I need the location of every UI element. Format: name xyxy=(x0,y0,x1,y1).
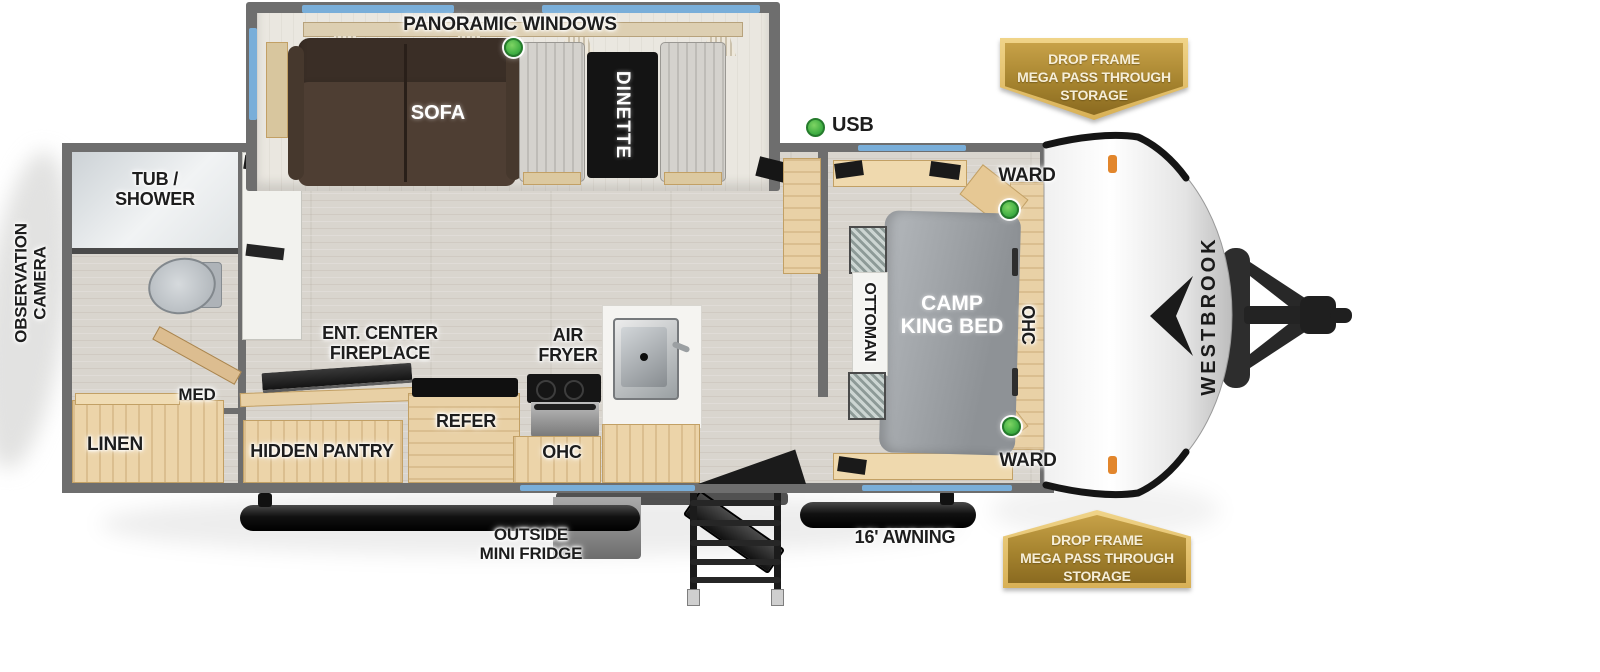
bed-bracket xyxy=(1012,248,1018,276)
stove-burner xyxy=(564,380,584,400)
awning-bracket-left xyxy=(258,493,272,507)
ottoman-label: OTTOMAN xyxy=(860,267,878,377)
hidden-pantry-label: HIDDEN PANTRY xyxy=(232,442,412,462)
refer-label: REFER xyxy=(406,412,526,432)
floorplan-stage: WESTBROOK PANORAMIC WINDOWS USB SOFA DIN… xyxy=(0,0,1600,672)
step-rung xyxy=(690,500,781,506)
med-label: MED xyxy=(167,386,227,405)
bed-bracket xyxy=(1012,368,1018,396)
sofa-armrest-left xyxy=(288,46,304,180)
kitchen-ohc-label: OHC xyxy=(512,443,612,463)
camp-king-bed-label: CAMPKING BED xyxy=(872,292,1032,338)
badge-line: MEGA PASS THROUGH xyxy=(1017,68,1171,86)
observation-camera-label: OBSERVATIONCAMERA xyxy=(13,206,53,361)
air-fryer-label: AIRFRYER xyxy=(508,326,628,366)
window-bottom-bedroom xyxy=(862,485,1012,491)
sink-drain xyxy=(640,353,648,361)
ward-bottom-label: WARD xyxy=(978,451,1078,472)
dinette-bench-right xyxy=(660,42,726,182)
stove-burner xyxy=(536,380,556,400)
marker-light-top xyxy=(1108,155,1117,173)
dinette-bench-left xyxy=(519,42,585,182)
slideout-window-top-1 xyxy=(302,5,454,13)
refer-top xyxy=(412,378,518,397)
awning-tube-right xyxy=(800,502,976,528)
badge-line: DROP FRAME xyxy=(1048,50,1140,68)
sofa-side-rack xyxy=(266,42,288,138)
dinette-label: DINETTE xyxy=(612,60,632,170)
linen-label: LINEN xyxy=(65,435,165,456)
corner-wardrobe xyxy=(783,158,821,274)
awning-label: 16' AWNING xyxy=(830,528,980,548)
dinette-bench-base-left xyxy=(523,172,581,185)
awning-bracket-right xyxy=(940,491,954,505)
sink-base-cabinet xyxy=(602,424,700,483)
window-top-bedroom xyxy=(858,145,966,151)
dinette-bench-base-right xyxy=(664,172,722,185)
marker-light-bottom xyxy=(1108,456,1117,474)
front-cap-and-hitch: WESTBROOK xyxy=(1038,128,1358,506)
slideout-window-left xyxy=(249,28,257,120)
badge-line: DROP FRAME xyxy=(1051,531,1143,549)
badge-pass-through-top: DROP FRAME MEGA PASS THROUGH STORAGE xyxy=(1000,38,1188,120)
ottoman-cushion-bottom xyxy=(848,372,886,420)
hitch-tip xyxy=(1330,308,1352,323)
slideout-window-top-2 xyxy=(542,5,760,13)
sofa-label: SOFA xyxy=(388,102,488,124)
green-indicator-ward-top xyxy=(1000,200,1019,219)
oven-handle xyxy=(534,404,596,410)
brand-wordmark: WESTBROOK xyxy=(1198,236,1220,395)
green-indicator-panoramic xyxy=(504,38,523,57)
step-rung xyxy=(690,520,781,526)
green-indicator-ward-bottom xyxy=(1002,417,1021,436)
panoramic-windows-label: PANORAMIC WINDOWS xyxy=(400,15,620,36)
tub-shower-label: TUB /SHOWER xyxy=(80,170,230,210)
green-indicator-usb xyxy=(806,118,825,137)
refer-cabinet xyxy=(408,393,520,483)
badge-line: STORAGE xyxy=(1063,567,1131,585)
ent-center-label: ENT. CENTERFIREPLACE xyxy=(290,324,470,364)
ward-top-label: WARD xyxy=(977,166,1077,187)
step-foot-left xyxy=(687,589,700,606)
sofa-seat xyxy=(298,82,516,186)
badge-line: MEGA PASS THROUGH xyxy=(1020,549,1174,567)
step-rung xyxy=(690,540,781,546)
outside-mini-fridge-label: OUTSIDEMINI FRIDGE xyxy=(451,526,611,563)
step-rung xyxy=(690,559,781,565)
step-rung xyxy=(690,577,781,583)
badge-line: STORAGE xyxy=(1060,86,1128,104)
bedroom-ohc-label: OHC xyxy=(1019,290,1037,360)
step-foot-right xyxy=(771,589,784,606)
linen-counter-edge xyxy=(75,393,180,405)
wall-top-left-seg xyxy=(62,143,258,152)
badge-pass-through-bottom: DROP FRAME MEGA PASS THROUGH STORAGE xyxy=(1003,510,1191,588)
usb-label: USB xyxy=(832,114,892,136)
window-bottom-kitchen xyxy=(520,485,695,491)
